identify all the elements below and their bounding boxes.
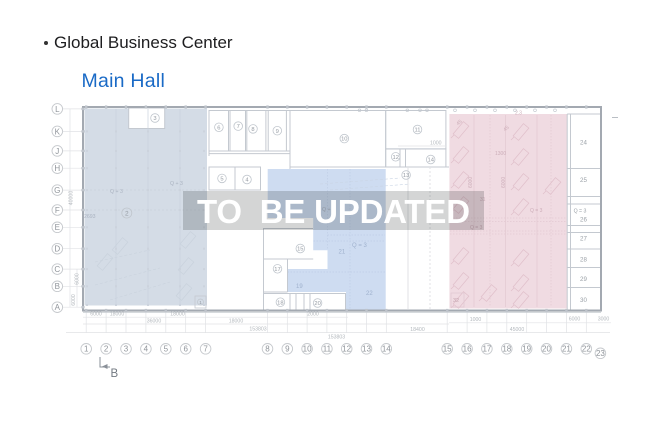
svg-text:8: 8 <box>251 127 254 133</box>
svg-text:6: 6 <box>217 125 220 131</box>
svg-text:Q = 3: Q = 3 <box>530 208 543 214</box>
svg-text:12: 12 <box>392 155 398 161</box>
svg-text:19: 19 <box>522 345 531 354</box>
svg-text:6000: 6000 <box>75 273 81 285</box>
svg-text:17: 17 <box>482 345 491 354</box>
svg-text:H: H <box>54 164 60 173</box>
svg-text:40000: 40000 <box>69 191 75 206</box>
svg-text:2693: 2693 <box>84 214 96 220</box>
svg-text:14: 14 <box>427 158 434 164</box>
svg-text:Q = 3: Q = 3 <box>574 209 587 215</box>
svg-text:6000: 6000 <box>468 177 474 188</box>
svg-text:153803: 153803 <box>249 327 266 333</box>
svg-text:14: 14 <box>382 345 391 354</box>
svg-text:A: A <box>55 303 61 312</box>
svg-text:26: 26 <box>580 217 587 224</box>
svg-text:6000: 6000 <box>569 316 581 322</box>
svg-text:E: E <box>55 223 60 232</box>
svg-text:21: 21 <box>339 250 346 256</box>
svg-text:22: 22 <box>366 291 373 297</box>
svg-text:4: 4 <box>144 345 149 354</box>
svg-text:15: 15 <box>297 247 303 253</box>
svg-text:13: 13 <box>403 173 409 179</box>
svg-text:29: 29 <box>580 276 587 283</box>
svg-text:4: 4 <box>245 178 249 184</box>
svg-text:1300: 1300 <box>495 151 506 157</box>
svg-text:32: 32 <box>453 298 459 304</box>
svg-text:G: G <box>54 186 60 195</box>
svg-text:15: 15 <box>443 345 452 354</box>
svg-text:Q + 3: Q + 3 <box>170 181 183 187</box>
svg-text:B: B <box>55 282 60 291</box>
svg-text:C: C <box>54 265 60 274</box>
svg-text:18: 18 <box>277 300 283 306</box>
svg-text:K: K <box>55 127 61 136</box>
svg-text:D: D <box>54 245 60 254</box>
svg-text:30: 30 <box>580 297 587 304</box>
svg-text:11: 11 <box>323 345 332 354</box>
svg-text:5: 5 <box>164 345 169 354</box>
svg-text:2000: 2000 <box>307 312 319 318</box>
svg-text:7: 7 <box>237 124 240 130</box>
svg-text:J: J <box>55 147 59 156</box>
svg-text:12: 12 <box>342 345 351 354</box>
svg-text:21: 21 <box>562 345 571 354</box>
svg-text:6000: 6000 <box>501 177 507 188</box>
svg-text:Q = 3: Q = 3 <box>352 243 368 249</box>
svg-text:5: 5 <box>220 177 223 183</box>
svg-text:2: 2 <box>104 345 109 354</box>
svg-text:9: 9 <box>276 129 279 135</box>
svg-text:7: 7 <box>203 345 208 354</box>
svg-text:36000: 36000 <box>147 318 162 324</box>
svg-text:F: F <box>55 206 60 215</box>
svg-text:18000: 18000 <box>110 312 125 318</box>
svg-text:19: 19 <box>296 284 303 290</box>
svg-text:1000: 1000 <box>430 141 442 147</box>
svg-text:3: 3 <box>124 345 129 354</box>
svg-text:6000: 6000 <box>71 294 77 306</box>
svg-text:L: L <box>55 105 60 114</box>
svg-text:11: 11 <box>414 128 420 134</box>
svg-text:10: 10 <box>303 345 312 354</box>
svg-text:3000: 3000 <box>598 316 610 322</box>
svg-text:18000: 18000 <box>170 312 185 318</box>
svg-text:20: 20 <box>542 345 551 354</box>
svg-text:6: 6 <box>183 345 188 354</box>
svg-text:1: 1 <box>84 345 89 354</box>
svg-text:25: 25 <box>580 177 587 184</box>
svg-text:9: 9 <box>285 345 290 354</box>
svg-text:8: 8 <box>265 345 270 354</box>
svg-text:B: B <box>111 368 119 380</box>
svg-text:20: 20 <box>314 301 320 307</box>
svg-text:153803: 153803 <box>328 335 345 341</box>
svg-text:23: 23 <box>596 349 605 358</box>
svg-text:28: 28 <box>580 257 587 264</box>
svg-text:1000: 1000 <box>470 317 482 323</box>
svg-text:18400: 18400 <box>410 327 425 333</box>
svg-text:6000: 6000 <box>90 312 102 318</box>
svg-text:24: 24 <box>580 140 587 147</box>
svg-text:45000: 45000 <box>510 327 525 333</box>
svg-text:3: 3 <box>153 116 156 122</box>
svg-text:Q + 3: Q + 3 <box>110 189 123 195</box>
svg-text:10: 10 <box>341 137 347 143</box>
svg-text:13: 13 <box>362 345 371 354</box>
svg-text:18: 18 <box>502 345 511 354</box>
svg-text:18000: 18000 <box>229 318 244 324</box>
svg-text:2: 2 <box>125 211 129 218</box>
svg-text:27: 27 <box>580 235 587 242</box>
svg-text:22: 22 <box>582 345 591 354</box>
svg-text:16: 16 <box>463 345 472 354</box>
svg-text:17: 17 <box>274 267 280 273</box>
